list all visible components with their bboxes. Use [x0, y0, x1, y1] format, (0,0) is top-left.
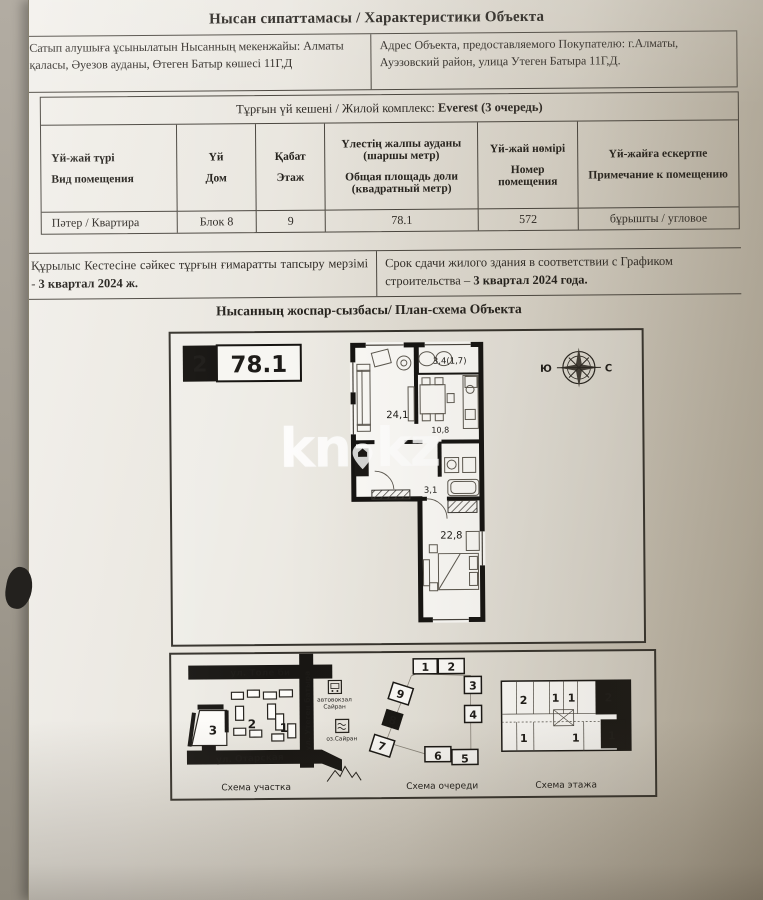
- compass-icon: Ю С: [540, 347, 612, 388]
- cell-area: 78.1: [326, 209, 479, 231]
- floor-unit-1a: 1: [552, 692, 560, 705]
- cell-floor: 9: [256, 211, 326, 233]
- queue-block-3: 3: [469, 679, 477, 692]
- queue-block-5: 5: [461, 752, 469, 765]
- col-area: Үлестің жалпы ауданы (шаршы метр) Общая …: [325, 122, 478, 210]
- col-floor-kz: Қабат: [261, 150, 320, 162]
- address-ru: Адрес Объекта, предоставляемого Покупате…: [372, 31, 738, 89]
- col-note: Үй-жайға ескертпе Примечание к помещению: [578, 120, 739, 208]
- floor-unit-1c: 1: [520, 732, 528, 745]
- unit-table-row: Пәтер / Квартира Блок 8 9 78.1 572 бұрыш…: [42, 207, 739, 233]
- document-sheet: Нысан сипаттамасы / Характеристики Объек…: [28, 0, 763, 900]
- deadline-kz-date: 3 квартал 2024 ж.: [38, 276, 138, 291]
- site-zone-2: 2: [248, 717, 256, 731]
- mountains-icon: [327, 766, 361, 781]
- plan-legend: 2 78.1: [183, 345, 301, 382]
- deadline-table: Құрылыс Кестесіне сәйкес тұрғын ғимаратт…: [28, 247, 741, 300]
- col-area-ru: Общая площадь доли (квадратный метр): [331, 170, 473, 195]
- address-table: Сатып алушыға ұсынылатын Нысанның мекенж…: [28, 30, 738, 93]
- floor-schema: 2 1 1 2 1 1 1 Схема этажа: [501, 680, 631, 791]
- deadline-ru: Срок сдачи жилого здания в соответствии …: [377, 248, 741, 296]
- bus-station-label-1: автовокзал: [317, 697, 352, 703]
- site-zone-3: 3: [209, 723, 217, 737]
- bus-station-label-2: Сайран: [323, 703, 346, 710]
- col-number-kz: Үй-жай нөмірі: [483, 142, 572, 155]
- queue-block-2: 2: [447, 661, 455, 674]
- queue-schema: 1 2 3 4 5 6 7 8 9 Схема очереди: [369, 658, 482, 792]
- col-house-kz: Үй: [182, 151, 250, 164]
- cell-number: 572: [479, 209, 579, 231]
- address-kz: Сатып алушыға ұсынылатын Нысанның мекенж…: [28, 34, 372, 92]
- street-utegen-batyra: ул. Утеген батыра: [303, 671, 313, 751]
- plan-title: Нысанның жоспар-сызбасы/ План-схема Объе…: [31, 300, 706, 321]
- col-type-ru: Вид помещения: [51, 173, 133, 186]
- watermark-suffix: kz: [376, 416, 440, 479]
- col-type-kz: Үй-жай түрі: [51, 152, 114, 164]
- queue-block-6: 6: [434, 750, 442, 763]
- floor-plan-drawing: 2 78.1: [171, 330, 644, 645]
- site-schema: ул. Толе би ул. Утеген батыра ул. Отарск…: [186, 653, 361, 793]
- label-balcony: 3,4(1,7): [433, 356, 467, 366]
- floor-caption: Схема этажа: [535, 780, 597, 790]
- schemas-drawing: ул. Толе би ул. Утеген батыра ул. Отарск…: [171, 651, 655, 799]
- cell-house: Блок 8: [178, 211, 257, 233]
- col-type: Үй-жай түрі Вид помещения: [41, 125, 178, 213]
- lake-label: оз.Сайран: [326, 735, 357, 742]
- queue-block-4: 4: [469, 708, 477, 721]
- document-content: Нысан сипаттамасы / Характеристики Объек…: [29, 0, 763, 900]
- label-hall: 3,1: [424, 486, 438, 496]
- complex-label: Тұрғын үй кешені / Жилой комплекс:: [236, 101, 435, 117]
- floor-unit-2-highlight: 2: [605, 691, 613, 704]
- compass-north-label: С: [605, 363, 612, 374]
- floor-unit-2a: 2: [520, 694, 528, 707]
- col-note-kz: Үй-жайға ескертпе: [583, 147, 733, 160]
- deadline-kz: Құрылыс Кестесіне сәйкес тұрғын ғимаратт…: [28, 251, 377, 299]
- bus-station-icon: [328, 680, 341, 693]
- floor-unit-1d: 1: [572, 732, 580, 745]
- watermark-prefix: kn: [279, 416, 350, 480]
- location-pin-icon: [353, 443, 373, 469]
- complex-value: Everest (3 очередь): [438, 100, 543, 115]
- col-note-ru: Примечание к помещению: [583, 168, 733, 181]
- watermark: kn kz: [279, 416, 439, 480]
- legend-area: 78.1: [230, 352, 287, 378]
- schemas-box: ул. Толе би ул. Утеген батыра ул. Отарск…: [169, 649, 657, 801]
- col-floor-ru: Этаж: [261, 171, 320, 183]
- site-caption: Схема участка: [221, 783, 291, 794]
- compass-south-label: Ю: [540, 364, 552, 375]
- col-floor: Қабат Этаж: [256, 124, 326, 212]
- col-number: Үй-жай нөмірі Номер помещения: [478, 122, 578, 210]
- col-number-ru: Номер помещения: [483, 163, 572, 188]
- floor-plan-box: 2 78.1: [169, 328, 646, 647]
- unit-table: Тұрғын үй кешені / Жилой комплекс: Evere…: [40, 91, 740, 234]
- queue-block-1: 1: [421, 661, 429, 674]
- document-title: Нысан сипаттамасы / Характеристики Объек…: [29, 7, 724, 29]
- queue-caption: Схема очереди: [406, 781, 478, 792]
- label-bedroom: 22,8: [440, 530, 462, 541]
- cell-type: Пәтер / Квартира: [42, 212, 178, 234]
- col-house: Үй Дом: [177, 124, 256, 212]
- col-area-kz: Үлестің жалпы ауданы (шаршы метр): [330, 137, 472, 162]
- col-house-ru: Дом: [182, 172, 250, 185]
- floor-unit-1b: 1: [568, 692, 576, 705]
- cell-note: бұрышты / угловое: [578, 207, 738, 229]
- street-tole-bi: ул. Толе би: [230, 667, 290, 678]
- deadline-ru-date: 3 квартал 2024 года.: [473, 272, 587, 287]
- unit-table-header: Үй-жай түрі Вид помещения Үй Дом Қабат Э…: [41, 120, 739, 212]
- floor-unit-1-highlight: 1: [608, 729, 616, 742]
- legend-room-count: 2: [192, 352, 208, 377]
- lake-icon: [336, 719, 349, 732]
- site-zone-1: 1: [280, 721, 288, 735]
